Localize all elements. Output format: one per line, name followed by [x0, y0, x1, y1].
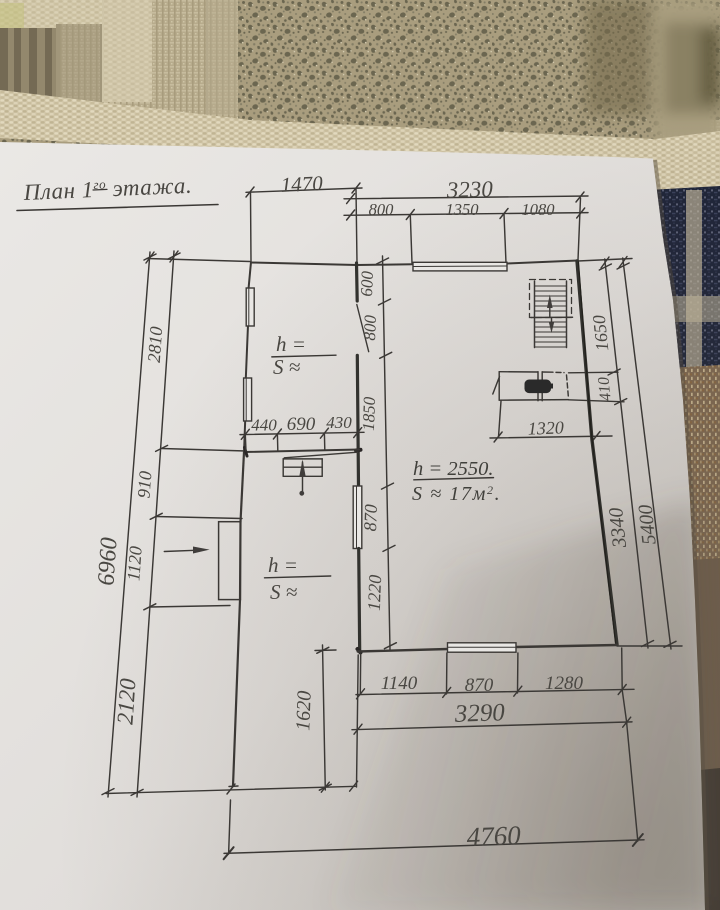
svg-text:800: 800	[369, 200, 395, 219]
svg-text:410: 410	[595, 376, 614, 402]
svg-text:h =: h =	[276, 332, 306, 356]
svg-text:1140: 1140	[381, 673, 418, 694]
svg-text:6960: 6960	[93, 537, 122, 587]
svg-text:800: 800	[360, 314, 380, 341]
svg-text:870: 870	[465, 675, 494, 696]
svg-text:h = 2550.: h = 2550.	[413, 458, 493, 480]
svg-text:1350: 1350	[446, 200, 480, 219]
svg-text:430: 430	[326, 413, 352, 432]
svg-text:1650: 1650	[589, 314, 613, 352]
svg-text:2120: 2120	[112, 677, 140, 725]
svg-text:2810: 2810	[144, 326, 166, 363]
svg-text:S ≈: S ≈	[273, 355, 301, 379]
svg-text:1080: 1080	[522, 200, 556, 219]
svg-text:1850: 1850	[359, 396, 379, 431]
svg-text:1280: 1280	[545, 673, 584, 694]
svg-text:3290: 3290	[453, 699, 505, 728]
svg-text:910: 910	[134, 470, 156, 498]
svg-text:h =: h =	[268, 553, 298, 577]
svg-text:1220: 1220	[364, 574, 385, 611]
svg-text:3340: 3340	[605, 507, 631, 550]
svg-text:4760: 4760	[466, 820, 522, 852]
svg-text:1120: 1120	[123, 546, 145, 582]
svg-text:5400: 5400	[635, 504, 661, 546]
svg-text:690: 690	[287, 414, 316, 435]
svg-text:1320: 1320	[527, 417, 564, 438]
svg-text:870: 870	[360, 504, 381, 532]
svg-text:3230: 3230	[446, 176, 494, 202]
svg-text:440: 440	[251, 416, 277, 435]
svg-text:600: 600	[357, 270, 377, 297]
svg-text:S ≈: S ≈	[270, 580, 298, 604]
svg-text:1470: 1470	[280, 171, 324, 197]
svg-text:1620: 1620	[292, 690, 315, 731]
